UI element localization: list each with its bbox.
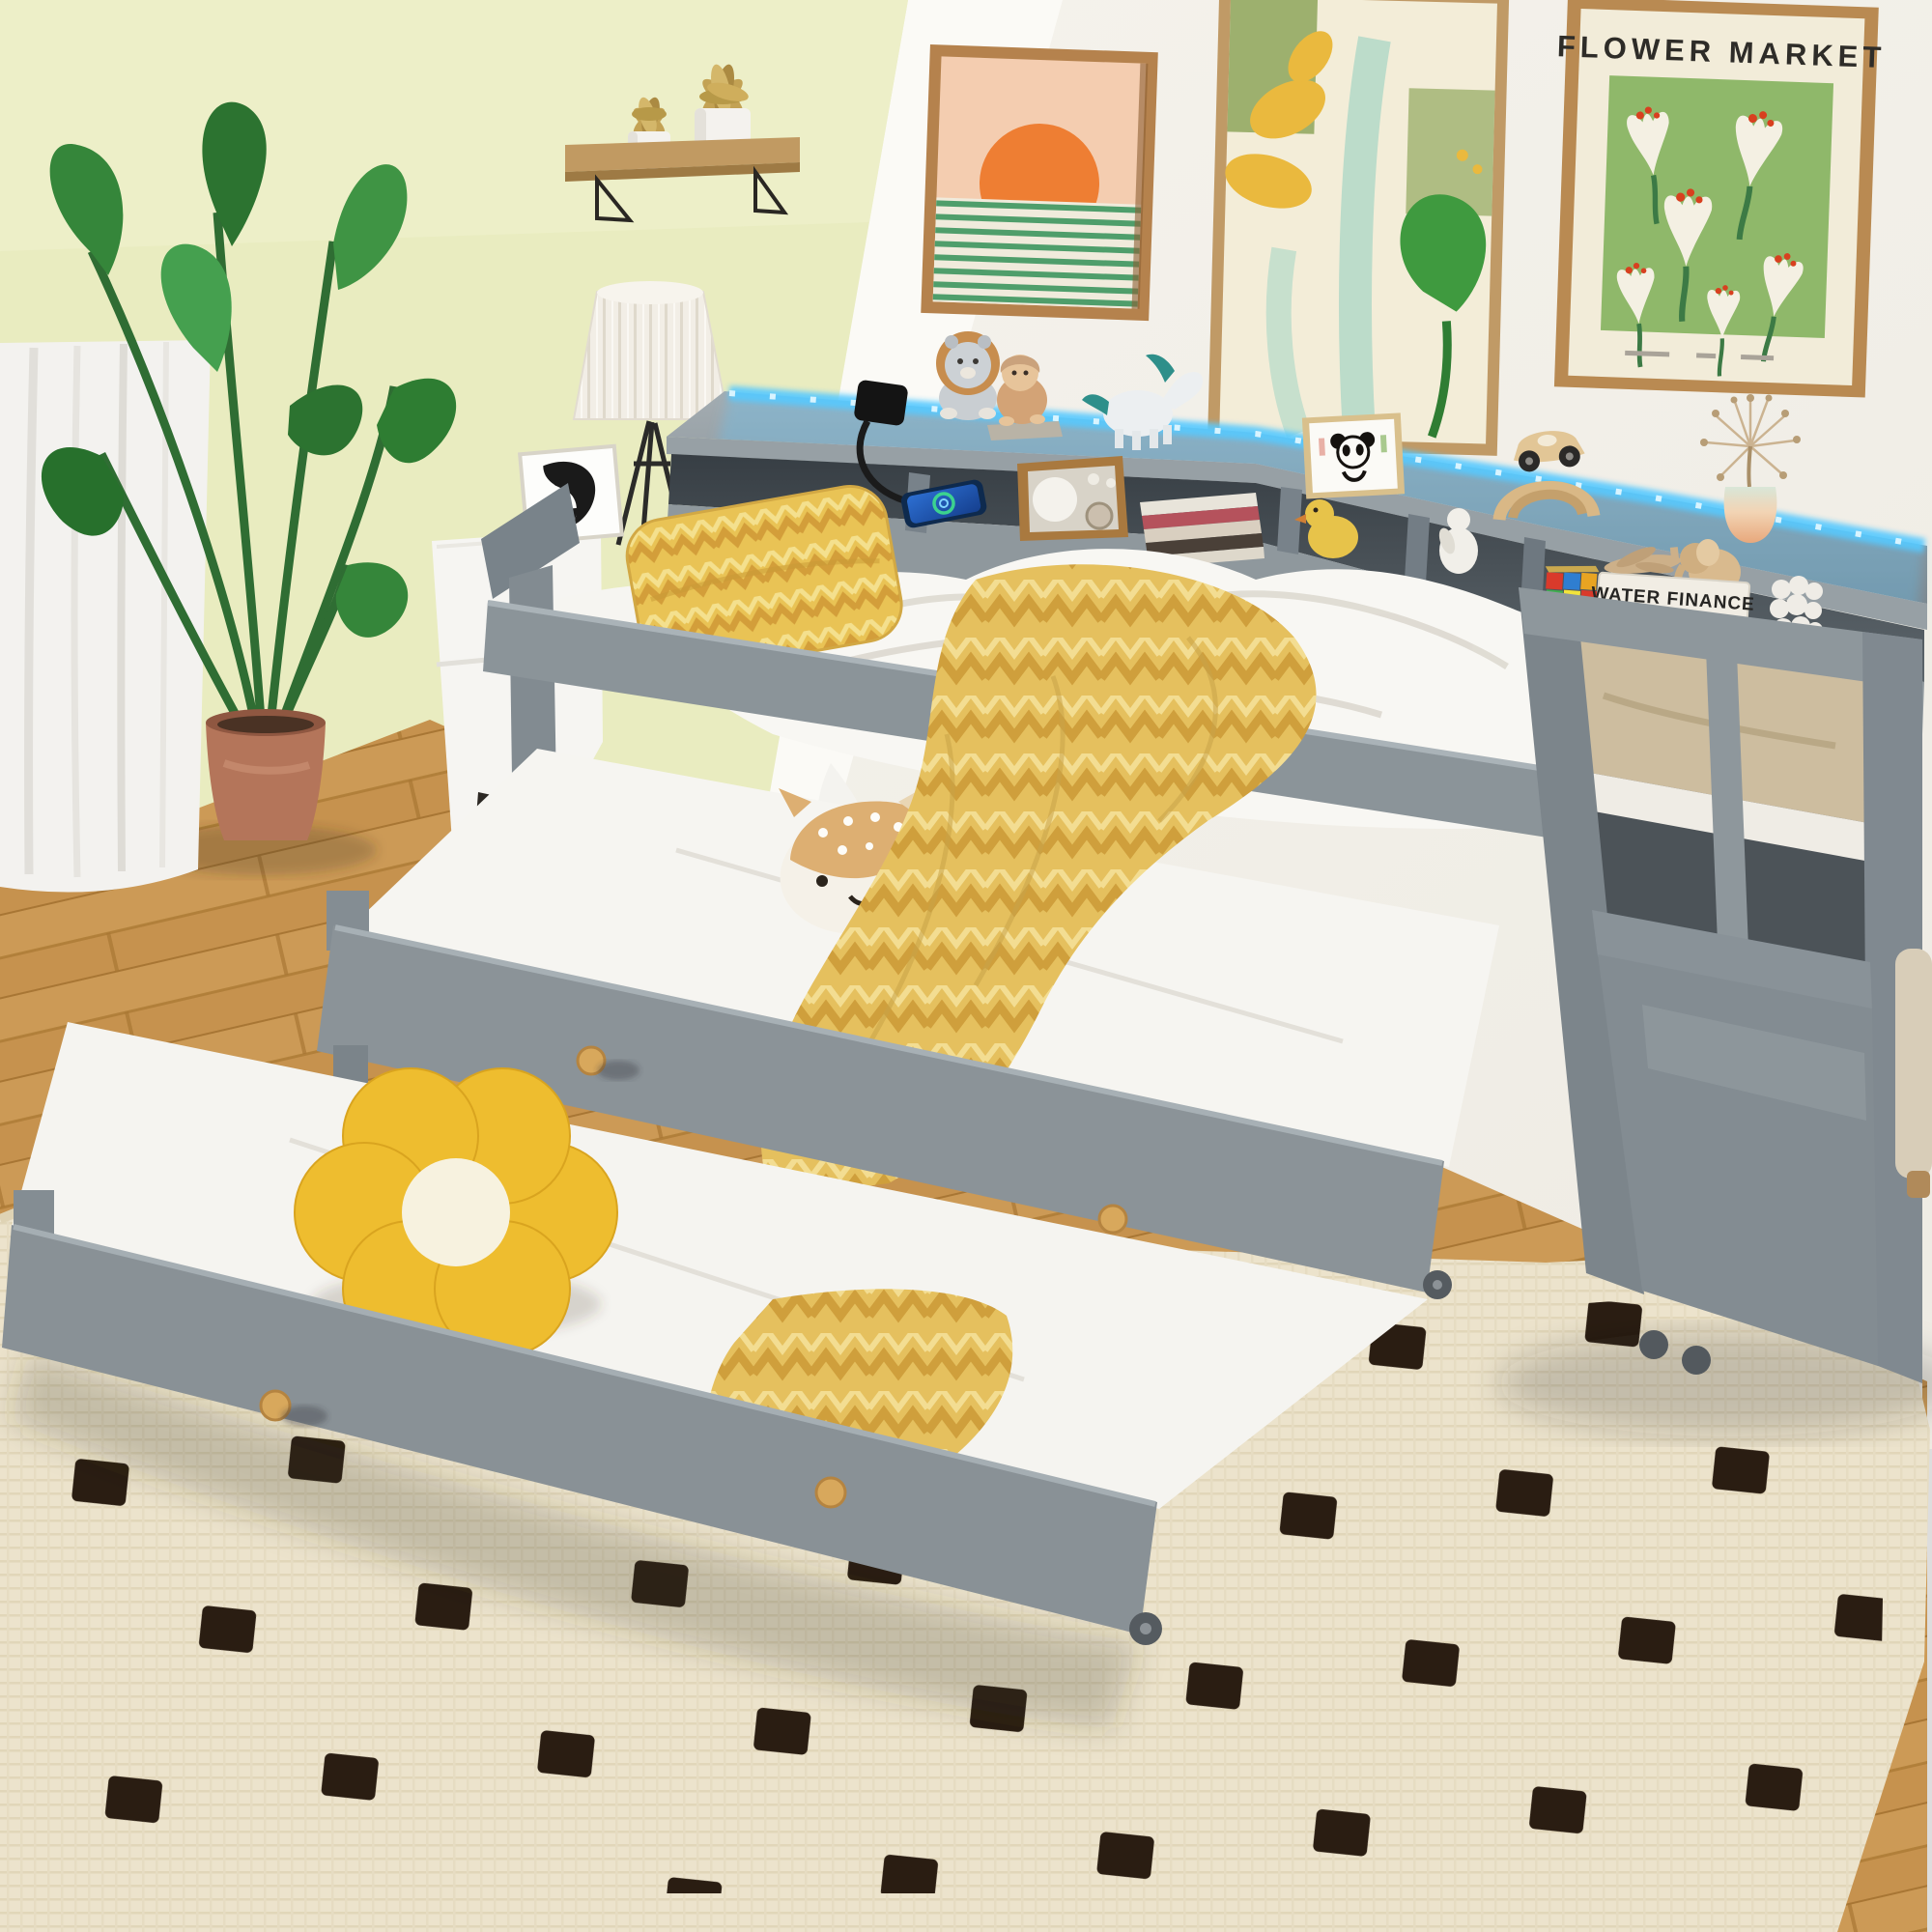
footboard-caster-2 (1682, 1346, 1711, 1375)
bottom-knob-right (816, 1478, 845, 1507)
radio-speaker (1033, 477, 1077, 522)
middle-knob-right (1099, 1206, 1126, 1233)
botanical-mint-stroke (1351, 39, 1375, 425)
plant-pot (206, 709, 326, 840)
usb-hub (853, 380, 908, 427)
cubby-divider-3 (1405, 514, 1430, 583)
panda-picture (1302, 412, 1405, 498)
footboard-caster-1 (1639, 1330, 1668, 1359)
lion-figurine (936, 331, 1000, 420)
pot-soil (217, 716, 314, 733)
sunrise-sea-stripes (933, 197, 1142, 308)
lamp-shade (574, 292, 728, 419)
sunrise-art (921, 44, 1158, 321)
radio (1017, 456, 1128, 541)
pouf-base (1907, 1171, 1930, 1198)
lamp-shade-top (597, 281, 703, 304)
scene-canvas: FLOWER MARKET (0, 0, 1932, 1932)
botanical-art (1207, 0, 1509, 456)
bedroom-product-photo: FLOWER MARKET (0, 0, 1932, 1932)
radio-dial (1087, 503, 1112, 528)
flower-market-poster: FLOWER MARKET (1546, 0, 1888, 398)
lion-face (945, 342, 991, 388)
pouf (1895, 949, 1932, 1198)
flower-center (402, 1158, 510, 1266)
